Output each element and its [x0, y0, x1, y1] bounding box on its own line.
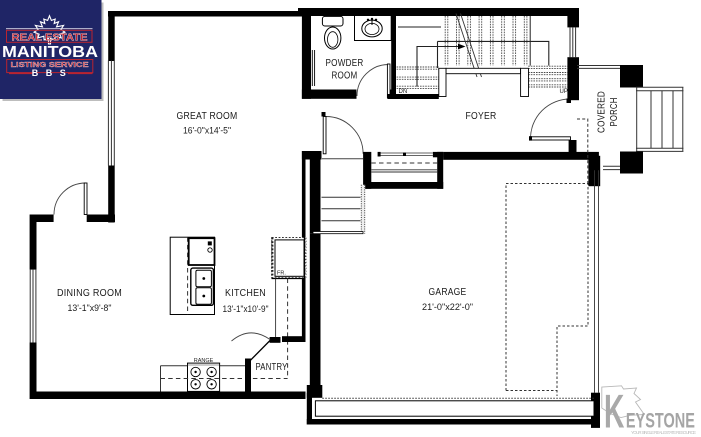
svg-text:13'-1"x9'-8": 13'-1"x9'-8"	[68, 303, 112, 314]
svg-text:FR.: FR.	[277, 271, 286, 277]
svg-text:YOUR SINGLE REAL ESTATE RESOUR: YOUR SINGLE REAL ESTATE RESOURCE	[631, 430, 696, 435]
svg-text:ROOM: ROOM	[332, 70, 358, 82]
svg-text:B B S: B B S	[32, 68, 69, 78]
svg-text:POWDER: POWDER	[326, 57, 364, 69]
svg-text:PORCH: PORCH	[608, 98, 620, 127]
svg-text:COVERED: COVERED	[596, 91, 608, 133]
svg-text:16'-0"x14'-5": 16'-0"x14'-5"	[183, 126, 231, 137]
svg-text:REAL ESTATE: REAL ESTATE	[12, 32, 89, 43]
svg-text:MANITOBA: MANITOBA	[2, 44, 98, 61]
svg-text:DN: DN	[399, 89, 408, 95]
svg-text:K: K	[604, 386, 624, 437]
svg-text:UP: UP	[560, 89, 568, 95]
svg-text:GREAT ROOM: GREAT ROOM	[177, 110, 238, 122]
svg-text:DINING ROOM: DINING ROOM	[57, 287, 122, 299]
svg-text:FOYER: FOYER	[466, 110, 497, 122]
svg-text:KITCHEN: KITCHEN	[225, 287, 266, 299]
svg-text:RANGE: RANGE	[194, 358, 214, 364]
svg-text:13'-1"x10'-9": 13'-1"x10'-9"	[223, 304, 269, 315]
svg-text:21'-0"x22'-0": 21'-0"x22'-0"	[422, 302, 473, 313]
svg-text:GARAGE: GARAGE	[429, 286, 467, 298]
svg-text:PANTRY: PANTRY	[256, 361, 288, 373]
